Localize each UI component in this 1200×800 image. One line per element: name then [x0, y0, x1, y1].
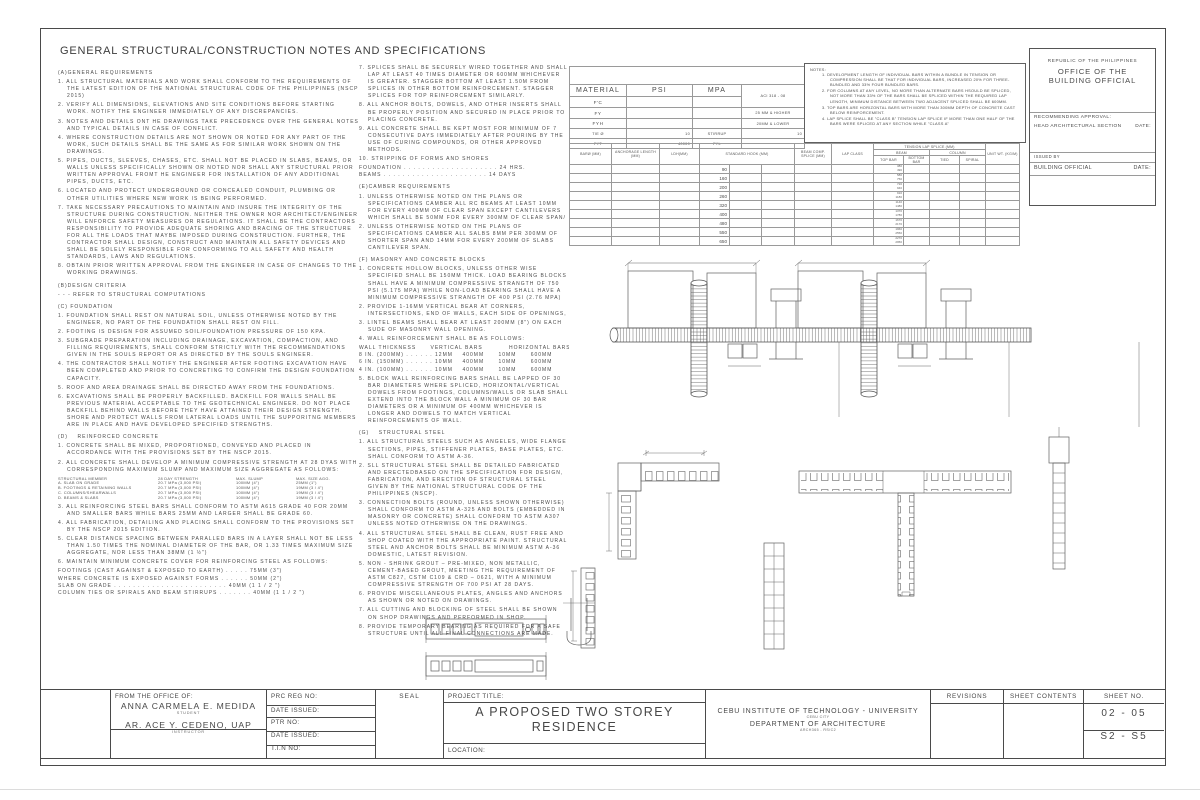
issued-by-row: ISSUED BY	[1034, 154, 1151, 159]
office-title: OFFICE OF THE BUILDING OFFICIAL	[1030, 67, 1155, 85]
hook-cell-2	[730, 219, 762, 228]
slump-cell: 100MM (4")	[236, 496, 296, 501]
top-bar-value-b: 940	[874, 187, 903, 191]
baro-cell	[570, 228, 612, 237]
course-code: ARCH365 - RS/C2	[706, 728, 930, 732]
top-bar-value-b: 1180	[874, 196, 903, 200]
prc-label: PRC REG NO:	[267, 690, 375, 704]
bar-table-row: 260 910 1180	[570, 192, 1020, 201]
sheet-no-value-1: 02 - 05	[1084, 708, 1164, 719]
note-item: 6. EXCAVATIONS SHALL BE PROPERLY BACKFIL…	[58, 394, 359, 429]
unit-wt-cell	[986, 210, 1020, 219]
tied-cell	[930, 219, 960, 228]
top-bar-cell: 1960 2550	[874, 228, 904, 237]
note-item: 3. ALL REINFORCING STEEL BARS SHALL CONF…	[58, 504, 359, 518]
bar-table-row: 200 720 940	[570, 183, 1020, 192]
office-of-cell: FROM THE OFFICE OF: ANNA CARMELA E. MEDI…	[110, 690, 266, 758]
note-item: 7. SPLICES SHALL BE SECURELY WIRED TOGET…	[359, 65, 569, 100]
beam-comp-cell	[795, 219, 832, 228]
anchorage-cell	[612, 201, 660, 210]
wall-reinforcement-table: WALL THICKNESS VERTICAL BARS HORIZONTAL …	[359, 345, 569, 373]
material-header-row: MATERIAL PSI MPA ACI 318 - 08	[570, 85, 805, 97]
top-bar-value-b: 2950	[874, 241, 903, 245]
student-role: STUDENT	[111, 711, 266, 715]
lap-class-cell	[832, 219, 874, 228]
title-block-empty-cell	[40, 690, 110, 758]
hook-value: 400	[700, 210, 730, 219]
cover-line: SLAB ON GRADE . . . . . . . . . . . . . …	[58, 583, 359, 590]
mpa-header: MPA	[693, 85, 742, 97]
spacer-row	[570, 67, 805, 85]
lap-class-cell	[832, 201, 874, 210]
republic-line: REPUBLIC OF THE PHILIPPINES	[1030, 58, 1155, 63]
notes-box-item: 3. TOP BARS ARE HORIZONTAL BARS WITH MOR…	[816, 105, 1020, 115]
wall-table-line: WALL THICKNESS VERTICAL BARS HORIZONTAL …	[359, 345, 569, 352]
hook-cell-3	[762, 165, 795, 174]
seal-cell: SEAL	[375, 690, 443, 758]
hook-cell-3	[762, 219, 795, 228]
stripping-line: FOUNDATION . . . . . . . . . . . . . . .…	[359, 165, 569, 172]
baro-cell	[570, 219, 612, 228]
psi-header: PSI	[627, 85, 693, 97]
corner-wall-block-detail	[606, 450, 719, 559]
spiral-cell	[960, 165, 986, 174]
hook-value: 260	[700, 192, 730, 201]
tied-header: TIED	[930, 156, 960, 165]
top-bar-value-b: 750	[874, 178, 903, 182]
note-item: 2. FOOTING IS DESIGN FOR ASSUMED SOIL/FO…	[58, 329, 359, 336]
standard-hook-header: STANDARD HOOK (MM)	[700, 144, 795, 165]
hook-cell-3	[762, 174, 795, 183]
institution-name: CEBU INSTITUTE OF TECHNOLOGY - UNIVERSIT…	[706, 708, 930, 715]
beam-comp-cell	[795, 210, 832, 219]
section-d-items-before: 1. CONCRETE SHALL BE MIXED, PROPORTIONED…	[58, 443, 359, 473]
wall-table-line: 4 IN. (100MM) . . . . . . 10MM 400MM 10M…	[359, 367, 569, 374]
hook-value: 200	[700, 183, 730, 192]
ldh-cell	[660, 210, 700, 219]
section-g-heading: (G) STRUCTURAL STEEL	[359, 430, 569, 437]
section-g-items: 1. ALL STRUCTURAL STEELS SUCH AS ANGELES…	[359, 439, 569, 637]
concrete-cover-lines: FOOTINGS (CAST AGAINST & EXPOSED TO EART…	[58, 568, 359, 596]
note-item: 3. SUBGRADE PREPARATION INCLUDING DRAINA…	[58, 338, 359, 359]
note-item: 6. PROVIDE MISCELLANEOUS PLATES, ANGLES …	[359, 591, 569, 605]
section-d-heading: (D) REINFORCED CONCRETE	[58, 434, 359, 441]
anchorage-cell	[612, 192, 660, 201]
ldh-cell	[660, 174, 700, 183]
bar-table-row: 650 2270 2950	[570, 237, 1020, 246]
spiral-header: SPIRAL	[960, 156, 986, 165]
anchorage-cell	[612, 174, 660, 183]
ldh-cell	[660, 219, 700, 228]
divider	[267, 731, 375, 732]
top-bar-cell: 1670 2170	[874, 219, 904, 228]
project-title-line1: A PROPOSED TWO STOREY	[444, 705, 705, 720]
lap-class-header: LAP CLASS	[832, 144, 874, 165]
tied-cell	[930, 210, 960, 219]
project-title-line2: RESIDENCE	[444, 720, 705, 735]
page-title: GENERAL STRUCTURAL/CONSTRUCTION NOTES AN…	[60, 45, 486, 57]
top-bar-cell: 1140 1480	[874, 201, 904, 210]
baro-cell	[570, 183, 612, 192]
note-item: 9. ALL CONCRETE SHALL BE KEPT MOST FOR M…	[359, 126, 569, 154]
anchorage-cell	[612, 183, 660, 192]
beam-comp-cell	[795, 165, 832, 174]
stirrup-label: STIRRUP	[693, 129, 742, 139]
ldh-cell	[660, 228, 700, 237]
note-item: 3. NOTES AND DETAILS ONT HE DRAWINGS TAK…	[58, 119, 359, 133]
registration-cell: PRC REG NO: DATE ISSUED: PTR NO: DATE IS…	[266, 690, 375, 758]
bar-table-row: 90 380 490	[570, 165, 1020, 174]
sheet-no-value-2: S2 - S5	[1084, 731, 1164, 742]
notes-box-item: 4. LAP SPLICE SHALL BE "CLASS B" TENSION…	[816, 116, 1020, 126]
recommending-row: RECOMMENDING APPROVAL:	[1034, 115, 1151, 120]
section-a-items: 1. ALL STRUCTURAL MATERIALS AND WORK SHA…	[58, 79, 359, 277]
bottom-bar-cell	[904, 201, 930, 210]
tee-wall-block-detail	[799, 471, 1011, 596]
right-wall-strip-detail	[1049, 427, 1069, 569]
spiral-cell	[960, 219, 986, 228]
title-block: FROM THE OFFICE OF: ANNA CARMELA E. MEDI…	[40, 689, 1165, 759]
ldh-header: LDH(MM)	[660, 144, 700, 165]
fyh-note: 20MM & LOWER	[742, 119, 805, 129]
note-item: 1. FOUNDATION SHALL REST ON NATURAL SOIL…	[58, 313, 359, 327]
hook-value: 160	[700, 174, 730, 183]
bar-table-row: 400 1370 1780	[570, 210, 1020, 219]
anchorage-cell	[612, 237, 660, 246]
note-item: 1. ALL STRUCTURAL STEELS SUCH AS ANGELES…	[359, 439, 569, 460]
beam-comp-cell	[795, 174, 832, 183]
ldh-cell	[660, 192, 700, 201]
official-title-area: REPUBLIC OF THE PHILIPPINES OFFICE OF TH…	[1030, 49, 1155, 113]
hook-cell-3	[762, 228, 795, 237]
baro-cell	[570, 165, 612, 174]
note-item: 5. BLOCK WALL REINFORCING BARS SHALL BE …	[359, 376, 569, 426]
top-bar-cell: 1370 1780	[874, 210, 904, 219]
beam-comp-cell	[795, 228, 832, 237]
note-item: 6. LOCATED AND PROTECT UNDERGROUND OR CO…	[58, 188, 359, 202]
instructor-role: INSTRUCTOR	[111, 730, 266, 734]
fy-row: FY 25 MM & HIGHER	[570, 108, 805, 119]
date-label: DATE:	[1135, 124, 1151, 129]
top-bar-cell: 910 1180	[874, 192, 904, 201]
note-item: 4. THE CONTRACTOR SHALL NOTIFY THE ENGIN…	[58, 361, 359, 382]
head-section-label: HEAD ARCHITECTURAL SECTION	[1034, 124, 1122, 129]
note-item: 5. PIPES, DUCTS, SLEEVES, CHASES, ETC. S…	[58, 158, 359, 186]
anchorage-header: ANCHORAGE LENGTH (MM)	[612, 144, 660, 165]
student-name: ANNA CARMELA E. MEDIDA	[111, 701, 266, 711]
notes-box-item: 1. DEVELOPMENT LENGTH OF INDIVIDUAL BARS…	[816, 72, 1020, 87]
tied-cell	[930, 228, 960, 237]
spiral-cell	[960, 210, 986, 219]
building-official-row: BUILDING OFFICIAL DATE:	[1034, 165, 1151, 171]
member-cell: D. BEAMS & SLABS	[58, 496, 158, 501]
revisions-label: REVISIONS	[931, 693, 1003, 700]
hook-cell-2	[730, 237, 762, 246]
unit-wt-header: UNIT WT. (KG/M)	[986, 144, 1020, 165]
spiral-cell	[960, 228, 986, 237]
note-item: 1. CONCRETE SHALL BE MIXED, PROPORTIONED…	[58, 443, 359, 457]
unit-wt-cell	[986, 219, 1020, 228]
section-f-heading: (F) MASONRY AND CONCRETE BLOCKS	[359, 257, 569, 264]
section-e-heading: (E)CAMBER REQUIREMENTS	[359, 184, 569, 191]
hook-cell-2	[730, 228, 762, 237]
lap-class-cell	[832, 228, 874, 237]
divider	[1030, 162, 1155, 163]
tie-row: TIE Ø 10 STIRRUP 10	[570, 129, 805, 139]
lap-class-cell	[832, 210, 874, 219]
baro-cell	[570, 192, 612, 201]
ldh-cell	[660, 183, 700, 192]
hook-cell-2	[730, 174, 762, 183]
hook-cell-2	[730, 210, 762, 219]
bottom-bar-cell	[904, 192, 930, 201]
note-item: 6. MAINTAIN MINIMUM CONCRETE COVER FOR R…	[58, 559, 359, 566]
anchorage-cell	[612, 165, 660, 174]
hook-cell-2	[730, 183, 762, 192]
bar-schedule-table: BARØ (MM) ANCHORAGE LENGTH (MM) LDH(MM) …	[569, 143, 1020, 246]
project-title-label: PROJECT TITLE:	[444, 690, 705, 700]
aci-ref: ACI 318 - 08	[742, 85, 805, 108]
sheet-no-label: SHEET NO.	[1084, 693, 1164, 700]
bar-table-row: 320 1140 1480	[570, 201, 1020, 210]
top-bar-value-b: 490	[874, 169, 903, 173]
divider	[267, 705, 375, 706]
cover-line: WHERE CONCRETE IS EXPOSED AGAINST FORMS …	[58, 576, 359, 583]
seal-label: SEAL	[376, 693, 443, 700]
drawing-sheet: GENERAL STRUCTURAL/CONSTRUCTION NOTES AN…	[40, 28, 1166, 766]
spiral-cell	[960, 201, 986, 210]
page-edge-line	[0, 789, 1200, 790]
anchorage-cell	[612, 228, 660, 237]
hook-cell-2	[730, 165, 762, 174]
spiral-cell	[960, 237, 986, 246]
section-f-items: 1. CONCRETE HOLLOW BLOCKS, UNLESS OTHER …	[359, 266, 569, 334]
baro-cell	[570, 237, 612, 246]
top-bar-value-b: 2550	[874, 232, 903, 236]
beam-comp-header: BEAM COMP. SPLICE (MM)	[795, 144, 832, 165]
fyh-label: FYH	[570, 119, 627, 129]
structural-member-table: STRUCTURAL MEMBER 28 DAY STRENGTH MAX. S…	[58, 477, 356, 501]
hook-cell-3	[762, 192, 795, 201]
hook-value: 480	[700, 219, 730, 228]
tie-label: TIE Ø	[570, 129, 627, 139]
bottom-bar-cell	[904, 210, 930, 219]
building-official-box: REPUBLIC OF THE PHILIPPINES OFFICE OF TH…	[1029, 48, 1156, 206]
note-item: 8. OBTAIN PRIOR WRITTEN APPROVAL FROM TH…	[58, 263, 359, 277]
note-item: 5. NON - SHRINK GROUT – PRE-MIXED, NON M…	[359, 561, 569, 589]
section-a-heading: (A)GENERAL REQUIREMENTS	[58, 70, 359, 77]
section-b-heading: (B)DESIGN CRITERIA	[58, 283, 359, 290]
beam-column-reinforcement-detail	[610, 260, 1139, 427]
top-bar-header: TOP BAR	[874, 156, 904, 165]
unit-wt-cell	[986, 228, 1020, 237]
divider	[1030, 152, 1155, 153]
aggregate-cell: 19MM (3 / 4")	[296, 496, 356, 501]
top-bar-value-b: 1780	[874, 214, 903, 218]
note-item: 7. TAKE NECESSARY PRECAUTIONS TO MAINTAI…	[58, 205, 359, 262]
bar-table-row: 550 1960 2550	[570, 228, 1020, 237]
note-item: 2. VERIFY ALL DIMENSIONS, ELEVATIONS AND…	[58, 102, 359, 116]
note-item: 3. CONNECTION BOLTS (ROUND, UNLESS SHOWN…	[359, 500, 569, 528]
sheet-no-cell: SHEET NO. 02 - 05 S2 - S5	[1083, 690, 1164, 758]
section-d-items-after: 3. ALL REINFORCING STEEL BARS SHALL CONF…	[58, 504, 359, 567]
items-7-to-10: 7. SPLICES SHALL BE SECURELY WIRED TOGET…	[359, 65, 569, 163]
tied-cell	[930, 165, 960, 174]
material-strength-table: MATERIAL PSI MPA ACI 318 - 08 F'C FY 25 …	[569, 66, 805, 149]
baro-cell	[570, 201, 612, 210]
cover-line: FOOTINGS (CAST AGAINST & EXPOSED TO EART…	[58, 568, 359, 575]
unit-wt-cell	[986, 201, 1020, 210]
project-title-cell: PROJECT TITLE: A PROPOSED TWO STOREY RES…	[443, 690, 705, 758]
issued-by-label: ISSUED BY	[1034, 154, 1060, 159]
note-item: 8. ALL ANCHOR BOLTS, DOWELS, AND OTHER I…	[359, 102, 569, 123]
baro-cell	[570, 174, 612, 183]
from-office-label: FROM THE OFFICE OF:	[111, 690, 266, 700]
divider	[267, 745, 375, 746]
splice-notes-box: NOTES: 1. DEVELOPMENT LENGTH OF INDIVIDU…	[804, 63, 1026, 143]
fyh-row: FYH 20MM & LOWER	[570, 119, 805, 129]
bottom-bar-cell	[904, 228, 930, 237]
institution-cell: CEBU INSTITUTE OF TECHNOLOGY - UNIVERSIT…	[705, 690, 930, 758]
divider	[931, 703, 1003, 704]
top-bar-cell: 2270 2950	[874, 237, 904, 246]
notes-column-middle: 7. SPLICES SHALL BE SECURELY WIRED TOGET…	[359, 65, 569, 671]
beam-comp-cell	[795, 201, 832, 210]
ldh-cell	[660, 201, 700, 210]
location-label: LOCATION:	[444, 744, 485, 754]
sheet-contents-label: SHEET CONTENTS	[1004, 693, 1083, 700]
unit-wt-cell	[986, 165, 1020, 174]
wall-table-line: 6 IN. (150MM) . . . . . . 10MM 400MM 10M…	[359, 359, 569, 366]
bottom-bar-cell	[904, 219, 930, 228]
fy-label: FY	[570, 108, 627, 119]
tin-label: T.I.N NO:	[267, 742, 375, 752]
unit-wt-cell	[986, 174, 1020, 183]
note-item: 4. WHERE CONSTRUCTION DETAILS ARE NOT SH…	[58, 135, 359, 156]
cover-line: COLUMN TIES OR SPIRALS AND BEAM STIRRUPS…	[58, 590, 359, 597]
lap-class-cell	[832, 192, 874, 201]
note-item: 1. ALL STRUCTURAL MATERIALS AND WORK SHA…	[58, 79, 359, 100]
top-bar-cell: 380 490	[874, 165, 904, 174]
wall-section-ladder-detail	[764, 543, 784, 649]
note-item: 4. ALL FABRICATION, DETAILING AND PLACIN…	[58, 520, 359, 534]
section-c-items: 1. FOUNDATION SHALL REST ON NATURAL SOIL…	[58, 313, 359, 429]
hook-cell-3	[762, 210, 795, 219]
tied-cell	[930, 174, 960, 183]
note-item: 4. WALL REINFORCEMENT SHALL BE AS FOLLOW…	[359, 336, 569, 343]
revisions-cell: REVISIONS	[930, 690, 1003, 758]
department-name: DEPARTMENT OF ARCHITECTURE	[706, 721, 930, 728]
date-label: DATE:	[1134, 165, 1151, 171]
ldh-cell	[660, 237, 700, 246]
left-wall-strip-detail	[571, 568, 595, 648]
tied-cell	[930, 192, 960, 201]
stripping-lines: FOUNDATION . . . . . . . . . . . . . . .…	[359, 165, 569, 179]
tied-cell	[930, 201, 960, 210]
note-item: 2. ALL CONCRETE SHALL DEVELOP A MINIMUM …	[58, 460, 359, 474]
lap-class-cell	[832, 237, 874, 246]
note-item: 4. ALL STRUCTURAL STEEL SHALL BE CLEAN, …	[359, 531, 569, 559]
anchorage-cell	[612, 210, 660, 219]
section-e-items: 1. UNLESS OTHERWISE NOTED ON THE PLANS O…	[359, 194, 569, 253]
stirrup-value: 10	[742, 129, 805, 139]
spiral-cell	[960, 183, 986, 192]
bar-table-row: 160 580 750	[570, 174, 1020, 183]
divider	[444, 702, 705, 703]
hook-cell-3	[762, 201, 795, 210]
note-item: 5. CLEAR DISTANCE SPACING BETWEEN PARALL…	[58, 536, 359, 557]
top-bar-value-b: 2170	[874, 223, 903, 227]
ldh-cell	[660, 165, 700, 174]
top-bar-cell: 580 750	[874, 174, 904, 183]
note-item: 1. CONCRETE HOLLOW BLOCKS, UNLESS OTHER …	[359, 266, 569, 301]
hook-value: 320	[700, 201, 730, 210]
institution-city: CEBU CITY	[706, 715, 930, 719]
notes-box-items: 1. DEVELOPMENT LENGTH OF INDIVIDUAL BARS…	[810, 72, 1020, 126]
material-header: MATERIAL	[570, 85, 627, 97]
bar-table-row: 480 1670 2170	[570, 219, 1020, 228]
tie-value: 10	[627, 129, 693, 139]
section-c-heading: (C) FOUNDATION	[58, 304, 359, 311]
spiral-cell	[960, 174, 986, 183]
lap-class-cell	[832, 165, 874, 174]
stripping-line: BEAMS . . . . . . . . . . . . . . . . . …	[359, 172, 569, 179]
bottom-bar-header: BOTTOM BAR	[904, 156, 930, 165]
divider	[1030, 175, 1155, 176]
bottom-bar-cell	[904, 183, 930, 192]
note-item: 2. PROVIDE 1-16MM VERTICAL BEAR AT CORNE…	[359, 304, 569, 318]
lap-class-cell	[832, 183, 874, 192]
notes-column-left: (A)GENERAL REQUIREMENTS 1. ALL STRUCTURA…	[58, 65, 359, 687]
strength-cell: 20.7 MPa (3,000 PSI)	[158, 496, 236, 501]
hook-cell-2	[730, 201, 762, 210]
notes-box-item: 2. FOR COLUMNS AT ANY LEVEL, NO MORE THA…	[816, 88, 1020, 103]
divider	[1084, 730, 1164, 731]
tied-cell	[930, 237, 960, 246]
divider	[267, 717, 375, 718]
unit-wt-cell	[986, 237, 1020, 246]
note-item: 5. ROOF AND AREA DRAINAGE SHALL BE DIREC…	[58, 385, 359, 392]
note-item: 2. SLL STRUCTURAL STEEL SHALL BE DETAILE…	[359, 463, 569, 498]
note-item: 2. UNLESS OTHERWISE NOTED ON THE PLANS O…	[359, 224, 569, 252]
unit-wt-cell	[986, 192, 1020, 201]
head-section-row: HEAD ARCHITECTURAL SECTION DATE:	[1034, 124, 1151, 129]
bottom-bar-cell	[904, 165, 930, 174]
divider	[111, 729, 266, 730]
hook-value: 650	[700, 237, 730, 246]
building-official-label: BUILDING OFFICIAL	[1034, 165, 1092, 171]
top-bar-value-b: 1480	[874, 205, 903, 209]
hook-cell-2	[730, 192, 762, 201]
hook-value: 90	[700, 165, 730, 174]
section-b-line: - - - REFER TO STRUCTURAL COMPUTATIONS	[58, 292, 359, 299]
bottom-bar-cell	[904, 237, 930, 246]
divider	[1084, 703, 1164, 704]
hook-cell-3	[762, 183, 795, 192]
note-item: 8. PROVIDE TEMPORARY BEARING AS REQUIRED…	[359, 624, 569, 638]
unit-wt-cell	[986, 183, 1020, 192]
hook-value: 550	[700, 228, 730, 237]
fc-label: F'C	[570, 97, 627, 108]
beam-comp-cell	[795, 237, 832, 246]
note-item: 3. LINTEL BEAMS SHALL BEAR AT LEAST 200M…	[359, 320, 569, 334]
top-bar-cell: 720 940	[874, 183, 904, 192]
hook-cell-3	[762, 237, 795, 246]
member-table-row: D. BEAMS & SLABS 20.7 MPa (3,000 PSI) 10…	[58, 496, 356, 501]
baro-header: BARØ (MM)	[570, 144, 612, 165]
fy-note: 25 MM & HIGHER	[742, 108, 805, 119]
beam-comp-cell	[795, 183, 832, 192]
